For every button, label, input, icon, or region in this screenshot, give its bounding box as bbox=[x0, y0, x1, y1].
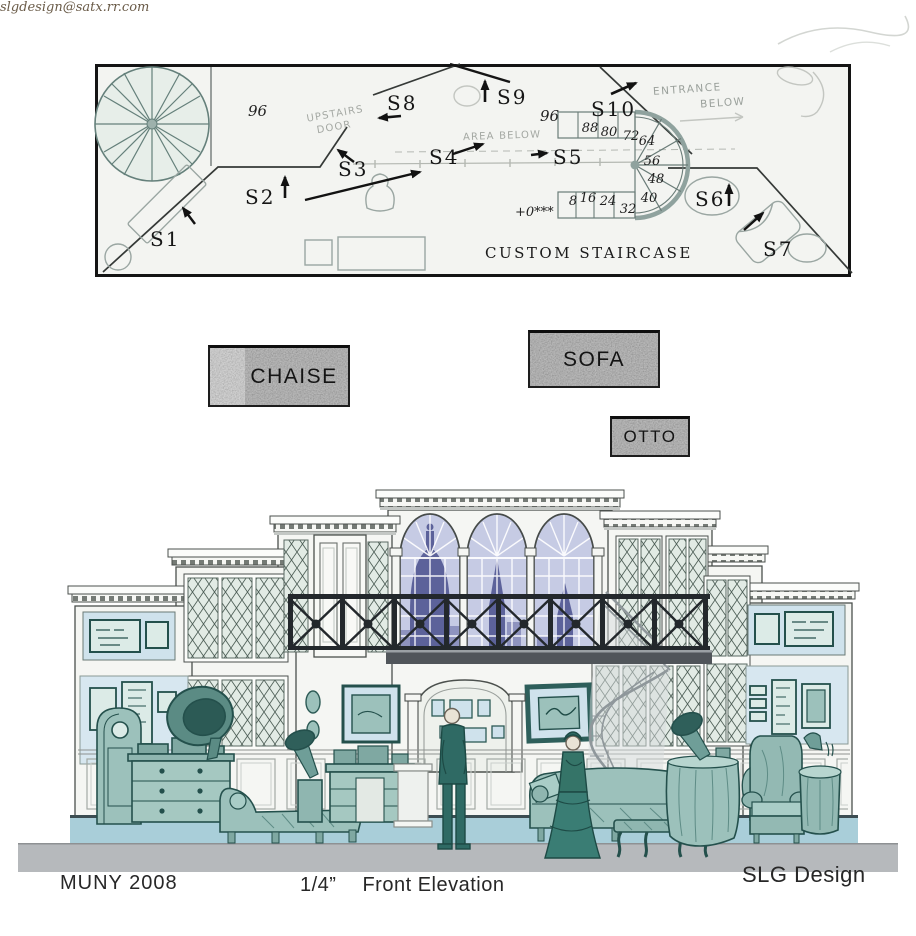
front-elevation-rendering bbox=[0, 478, 916, 876]
marker-s1-label: S1 bbox=[150, 227, 180, 251]
spiral-staircase-plan bbox=[95, 67, 209, 181]
tread-80: 80 bbox=[601, 125, 618, 140]
design-sheet-page: 8 16 24 32 40 48 56 64 72 80 88 96 96 +0… bbox=[0, 0, 916, 936]
tread-32: 32 bbox=[620, 202, 637, 217]
marker-s7-label: S7 bbox=[763, 237, 793, 261]
fabric-swatch-otto: OTTO bbox=[610, 416, 690, 457]
marker-s9-label: S9 bbox=[497, 85, 527, 109]
floor-plan: 8 16 24 32 40 48 56 64 72 80 88 96 96 +0… bbox=[95, 64, 851, 277]
marker-s8-label: S8 bbox=[387, 91, 417, 115]
marker-s6: S6 bbox=[695, 185, 729, 211]
tread-48: 48 bbox=[647, 172, 665, 187]
datum-note: +0*** bbox=[515, 205, 554, 220]
fabric-swatch-chaise: CHAISE bbox=[208, 345, 350, 407]
frames-left-upper bbox=[90, 620, 168, 652]
dim-96-right: 96 bbox=[540, 107, 560, 125]
wing-chair bbox=[742, 736, 810, 843]
tread-64: 64 bbox=[639, 134, 656, 149]
tread-16: 16 bbox=[580, 191, 597, 206]
fabric-swatch-sofa: SOFA bbox=[528, 330, 660, 388]
cornice-left-upper bbox=[270, 516, 400, 535]
marker-s5-label: S5 bbox=[553, 145, 583, 169]
tread-24: 24 bbox=[599, 194, 617, 209]
designer-name: SLG Design bbox=[742, 862, 866, 888]
cornice-left-low bbox=[68, 586, 199, 602]
draped-round-table bbox=[666, 748, 739, 846]
drawing-title: Front Elevation bbox=[362, 874, 504, 896]
marker-s10-label: S10 bbox=[591, 97, 636, 121]
oval-plate-1 bbox=[306, 691, 320, 713]
white-pedestal bbox=[394, 764, 432, 827]
marker-s6-label: S6 bbox=[695, 187, 725, 211]
frames-right-upper bbox=[755, 612, 833, 646]
drawing-title-line: 1/4”Front Elevation bbox=[300, 874, 504, 897]
tread-72: 72 bbox=[623, 129, 640, 144]
chaise-swatch-label: CHAISE bbox=[210, 348, 348, 405]
cornice-right-upper bbox=[600, 511, 720, 530]
tread-88: 88 bbox=[582, 121, 599, 136]
frame-left-of-door bbox=[343, 686, 399, 742]
sofa-swatch-label: SOFA bbox=[530, 333, 658, 386]
dim-96-left: 96 bbox=[248, 102, 268, 120]
cornice-center bbox=[376, 490, 624, 510]
plan-caption: CUSTOM STAIRCASE bbox=[485, 244, 693, 262]
large-ornate-frame bbox=[527, 685, 591, 741]
window-left-mid-upper bbox=[184, 574, 288, 662]
production-label: MUNY 2008 bbox=[60, 872, 178, 895]
tread-8: 8 bbox=[569, 194, 577, 209]
cornice-right-low bbox=[736, 583, 859, 599]
marker-s2-label: S2 bbox=[245, 185, 275, 209]
tread-40: 40 bbox=[640, 191, 658, 206]
scale-label: 1/4” bbox=[300, 874, 336, 896]
pencil-smudge-top-right bbox=[770, 2, 910, 62]
tread-56: 56 bbox=[644, 154, 661, 169]
otto-swatch-label: OTTO bbox=[612, 419, 688, 455]
marker-s4-label: S4 bbox=[429, 145, 459, 169]
